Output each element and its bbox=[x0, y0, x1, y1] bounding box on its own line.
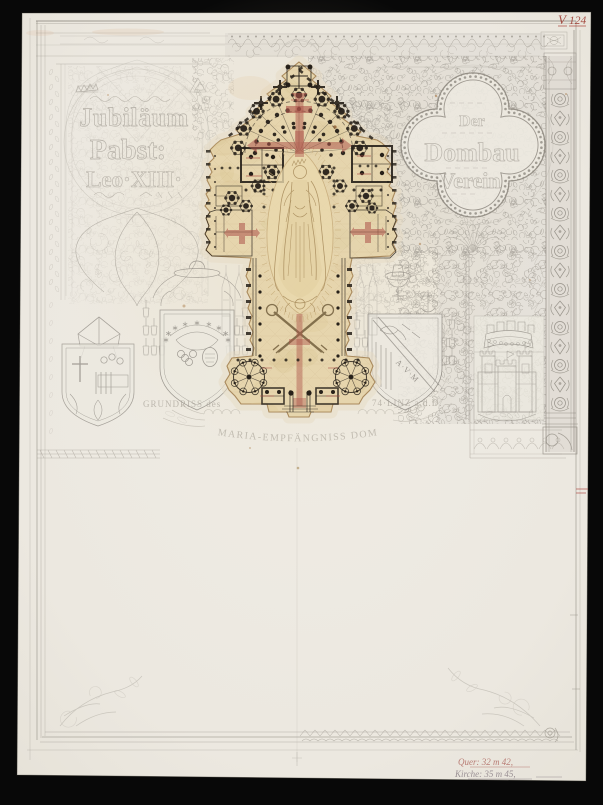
svg-text:Kirche: 35 m 45,: Kirche: 35 m 45, bbox=[454, 769, 516, 779]
svg-text:Verein: Verein bbox=[439, 168, 500, 193]
svg-text:Dombau: Dombau bbox=[424, 138, 519, 167]
svg-text:GRUNDRISS des: GRUNDRISS des bbox=[143, 399, 221, 409]
svg-text:Quer: 32 m 42,: Quer: 32 m 42, bbox=[458, 757, 513, 767]
svg-text:Jubiläum: Jubiläum bbox=[79, 103, 189, 132]
svg-text:124: 124 bbox=[569, 15, 587, 27]
svg-text:Leo·XIII·: Leo·XIII· bbox=[86, 167, 182, 192]
svg-text:74·LINZ a.d.D.: 74·LINZ a.d.D. bbox=[372, 398, 442, 408]
svg-text:Pabst:: Pabst: bbox=[90, 135, 166, 166]
svg-text:Der: Der bbox=[459, 113, 485, 130]
